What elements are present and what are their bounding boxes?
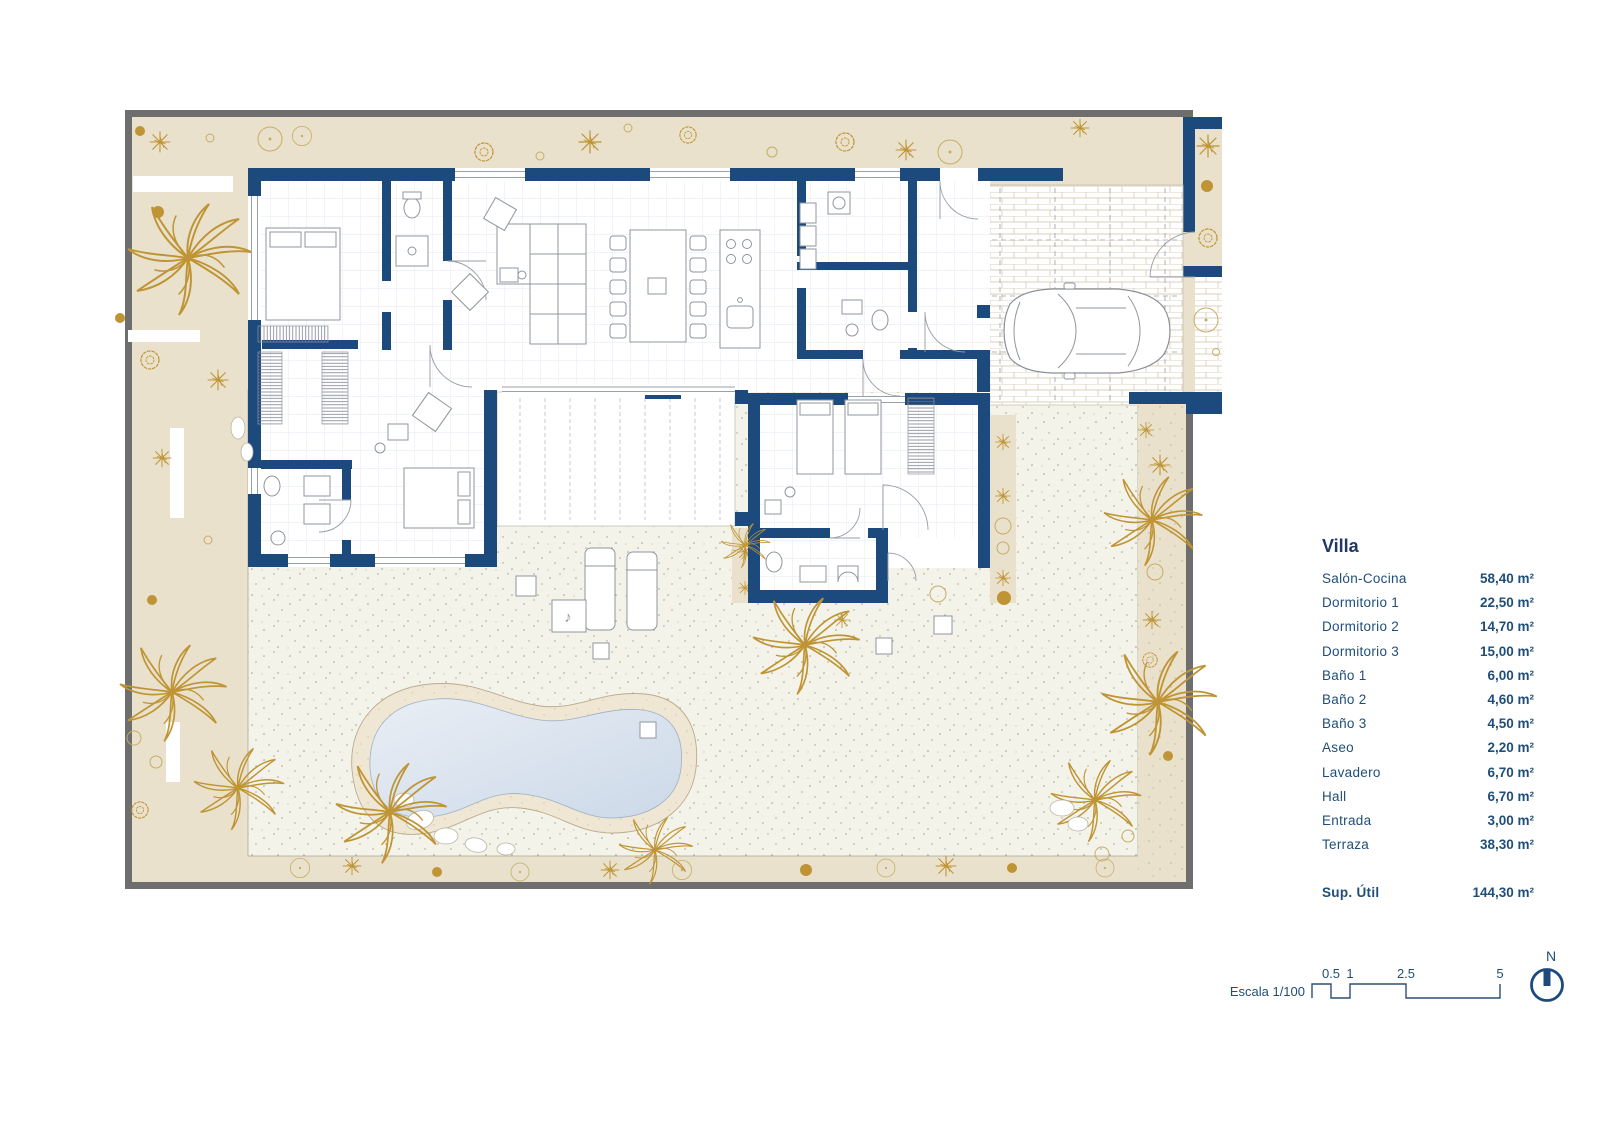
legend-room-area: 6,70 m² xyxy=(1487,765,1534,780)
north-label: N xyxy=(1546,948,1556,964)
legend-row: Baño 16,00 m² xyxy=(1322,668,1534,692)
legend-room-name: Hall xyxy=(1322,789,1346,804)
legend-room-area: 4,50 m² xyxy=(1487,716,1534,731)
legend-total-area: 144,30 m² xyxy=(1472,885,1534,900)
legend-room-area: 4,60 m² xyxy=(1487,692,1534,707)
toilet-icon xyxy=(872,310,888,330)
toilet-icon xyxy=(766,552,782,572)
scale-label: Escala 1/100 xyxy=(1230,984,1305,999)
scale-tick: 2.5 xyxy=(1397,966,1415,981)
speaker-box: ♪ xyxy=(552,600,586,632)
legend-room-area: 3,00 m² xyxy=(1487,813,1534,828)
legend-row: Terraza38,30 m² xyxy=(1322,837,1534,861)
legend-title: Villa xyxy=(1322,536,1534,557)
legend-row: Salón-Cocina58,40 m² xyxy=(1322,571,1534,595)
legend-total-name: Sup. Útil xyxy=(1322,885,1379,900)
legend-room-name: Baño 1 xyxy=(1322,668,1367,683)
legend-row: Entrada3,00 m² xyxy=(1322,813,1534,837)
scale-tick: 5 xyxy=(1496,966,1503,981)
legend-room-area: 14,70 m² xyxy=(1480,619,1534,634)
legend-row: Baño 24,60 m² xyxy=(1322,692,1534,716)
svg-text:♪: ♪ xyxy=(564,609,572,626)
car-icon xyxy=(1004,283,1170,379)
legend-room-name: Dormitorio 1 xyxy=(1322,595,1399,610)
legend-room-name: Terraza xyxy=(1322,837,1369,852)
legend-room-area: 22,50 m² xyxy=(1480,595,1534,610)
scale-tick: 0.5 xyxy=(1322,966,1340,981)
agave-icon xyxy=(1197,135,1219,157)
dining-table xyxy=(610,230,706,342)
wardrobe xyxy=(258,326,328,342)
legend-room-area: 38,30 m² xyxy=(1480,837,1534,852)
legend-row: Dormitorio 315,00 m² xyxy=(1322,644,1534,668)
north-arrow-icon: N xyxy=(1532,948,1563,1001)
villa-floor-plan-sheet: ♪ xyxy=(0,0,1600,1131)
legend-room-name: Dormitorio 2 xyxy=(1322,619,1399,634)
legend-rooms: Salón-Cocina58,40 m²Dormitorio 122,50 m²… xyxy=(1322,571,1534,861)
legend-room-name: Lavadero xyxy=(1322,765,1381,780)
legend-room-area: 6,00 m² xyxy=(1487,668,1534,683)
covered-deck xyxy=(497,392,735,526)
legend-room-area: 6,70 m² xyxy=(1487,789,1534,804)
legend-room-area: 2,20 m² xyxy=(1487,740,1534,755)
legend-row: Dormitorio 122,50 m² xyxy=(1322,595,1534,619)
wardrobe xyxy=(908,398,934,474)
legend-room-name: Aseo xyxy=(1322,740,1354,755)
wardrobe xyxy=(258,352,282,424)
legend-room-name: Entrada xyxy=(1322,813,1371,828)
legend-total-row: Sup. Útil 144,30 m² xyxy=(1322,885,1534,909)
kitchen-island xyxy=(720,230,760,348)
legend-room-name: Baño 3 xyxy=(1322,716,1367,731)
sun-lounger xyxy=(627,552,657,630)
scale-tick: 1 xyxy=(1346,966,1353,981)
wardrobe xyxy=(322,352,348,424)
scale-bar: Escala 1/100 0.5 1 2.5 5 xyxy=(1230,966,1504,999)
legend-room-name: Dormitorio 3 xyxy=(1322,644,1399,659)
toilet-icon xyxy=(404,198,420,218)
legend-room-area: 58,40 m² xyxy=(1480,571,1534,586)
sun-lounger xyxy=(585,548,615,630)
legend-room-name: Baño 2 xyxy=(1322,692,1367,707)
room-legend: Villa Salón-Cocina58,40 m²Dormitorio 122… xyxy=(1322,536,1534,909)
legend-room-name: Salón-Cocina xyxy=(1322,571,1407,586)
legend-row: Baño 34,50 m² xyxy=(1322,716,1534,740)
legend-row: Lavadero6,70 m² xyxy=(1322,765,1534,789)
legend-room-area: 15,00 m² xyxy=(1480,644,1534,659)
legend-row: Hall6,70 m² xyxy=(1322,789,1534,813)
legend-row: Aseo2,20 m² xyxy=(1322,740,1534,764)
right-garden-band xyxy=(1129,392,1222,882)
legend-row: Dormitorio 214,70 m² xyxy=(1322,619,1534,643)
toilet-icon xyxy=(264,476,280,496)
